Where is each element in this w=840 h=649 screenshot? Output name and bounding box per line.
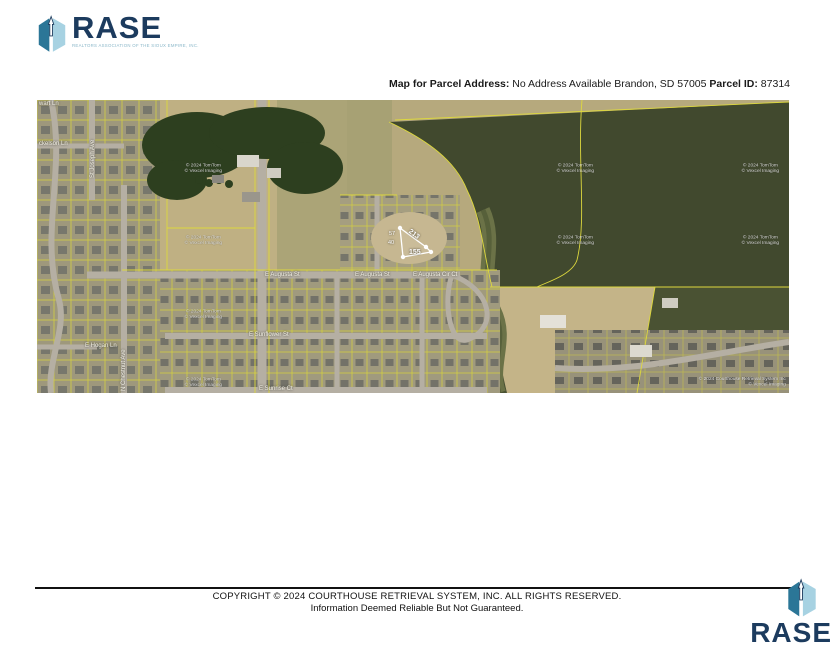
address-label: Map for Parcel Address:	[389, 78, 509, 90]
rase-logo-top: RASE REALTORS ASSOCIATION OF THE SIOUX E…	[37, 13, 248, 57]
parcel-id-label: Parcel ID:	[709, 78, 757, 90]
parcel-map: wart Ln ckelson Ln St Joseph Ave N Chest…	[37, 100, 789, 393]
imagery-watermark: © 2024 TomTom © Vexcel Imaging	[742, 163, 779, 174]
map-title: Map for Parcel Address: No Address Avail…	[389, 78, 790, 90]
parcel-dimension: 57	[389, 232, 395, 238]
imagery-watermark: © 2024 TomTom © Vexcel Imaging	[185, 309, 222, 320]
rase-logo-bottom: RASE	[762, 578, 832, 647]
rase-cube-icon	[786, 578, 818, 620]
street-label: E Augusta St	[265, 272, 300, 278]
parcel-dimension: 155	[409, 249, 421, 256]
imagery-watermark: © 2024 TomTom © Vexcel Imaging	[557, 235, 594, 246]
street-label: E Augusta St	[355, 272, 390, 278]
address-value: No Address Available Brandon, SD 57005	[512, 78, 706, 90]
footer-divider	[35, 587, 795, 589]
rase-logo-text: RASE	[72, 13, 248, 42]
street-label: wart Ln	[39, 101, 59, 107]
imagery-watermark: © 2024 TomTom © Vexcel Imaging	[557, 163, 594, 174]
imagery-watermark: © 2024 TomTom © Vexcel Imaging	[742, 235, 779, 246]
street-label: St Joseph Ave	[90, 140, 96, 178]
footer-line2: Information Deemed Reliable But Not Guar…	[0, 603, 834, 614]
footer-copyright: COPYRIGHT © 2024 COURTHOUSE RETRIEVAL SY…	[0, 591, 834, 614]
rase-logo-text: RASE	[750, 620, 832, 647]
street-label: E Hogan Ln	[85, 343, 117, 349]
footer-line1: COPYRIGHT © 2024 COURTHOUSE RETRIEVAL SY…	[0, 591, 834, 602]
parcel-dimension: 40	[388, 241, 394, 247]
page: RASE REALTORS ASSOCIATION OF THE SIOUX E…	[0, 0, 840, 649]
street-label: E Augusta Cir Ct	[413, 272, 457, 278]
rase-cube-icon	[37, 13, 67, 57]
street-label: N Chestnut Ave	[121, 349, 127, 391]
rase-logo-tagline: REALTORS ASSOCIATION OF THE SIOUX EMPIRE…	[72, 44, 199, 48]
street-label: E Sunrise Ct	[259, 386, 293, 392]
parcel-id-value: 87314	[761, 78, 790, 90]
imagery-watermark: © 2024 TomTom © Vexcel Imaging	[185, 235, 222, 246]
imagery-watermark: © 2024 TomTom © Vexcel Imaging	[185, 377, 222, 388]
street-label: ckelson Ln	[39, 141, 68, 147]
street-label: E Sunflower St	[249, 332, 289, 338]
satellite-imagery	[37, 100, 789, 393]
imagery-watermark: © 2024 TomTom © Vexcel Imaging	[185, 163, 222, 174]
map-credit: © 2024 Courthouse Retrieval System Inc ©…	[699, 377, 786, 389]
